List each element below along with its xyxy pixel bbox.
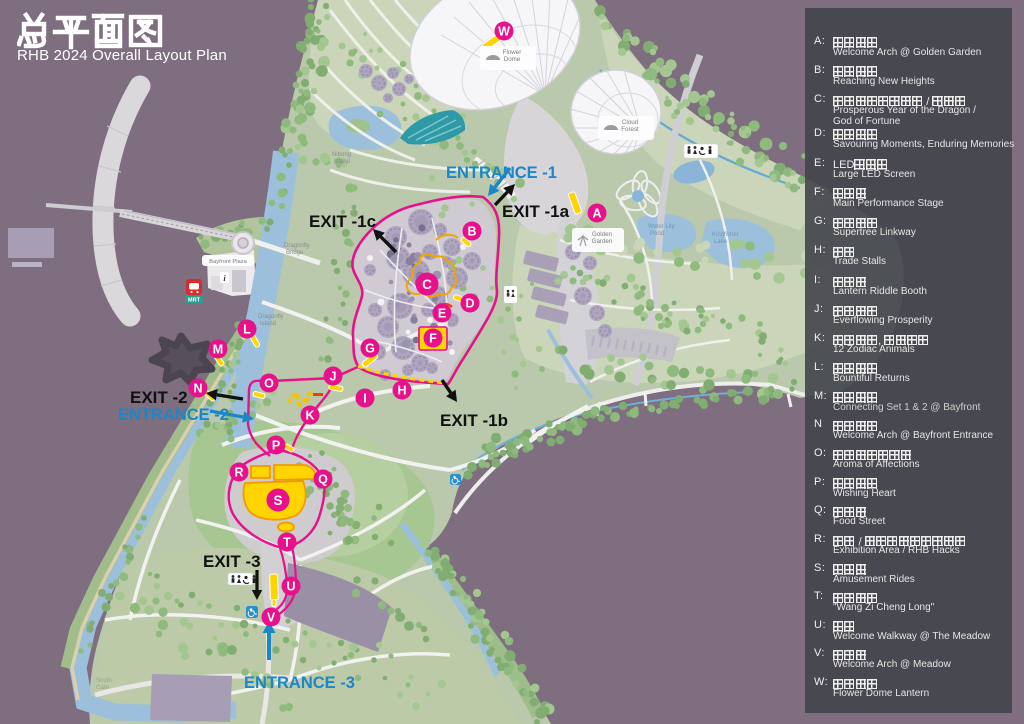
svg-text:C: C [422, 277, 432, 292]
svg-text:ENTRANCE -3: ENTRANCE -3 [244, 674, 355, 692]
svg-text:B: B [467, 225, 476, 239]
svg-text:ENTRANCE -2: ENTRANCE -2 [118, 406, 229, 424]
svg-text:EXIT -2: EXIT -2 [130, 388, 188, 407]
svg-text:Lake: Lake [714, 239, 728, 245]
svg-text:Dragonfly: Dragonfly [284, 243, 310, 249]
svg-text:L: L [243, 323, 251, 337]
svg-text:A: A [592, 207, 601, 221]
svg-text:Island: Island [260, 321, 276, 327]
svg-text:Garden: Garden [592, 238, 613, 245]
svg-text:D: D [465, 297, 474, 311]
svg-text:Kingfisher: Kingfisher [712, 232, 739, 238]
svg-text:M: M [213, 343, 223, 357]
svg-text:Golden: Golden [592, 231, 613, 238]
svg-text:Dome: Dome [504, 56, 521, 63]
svg-text:Forest: Forest [621, 126, 639, 133]
svg-text:Pond: Pond [650, 231, 664, 237]
svg-text:N: N [193, 382, 202, 396]
svg-text:ENTRANCE -1: ENTRANCE -1 [446, 164, 557, 182]
svg-text:V: V [267, 611, 276, 625]
svg-text:EXIT -1c: EXIT -1c [309, 212, 376, 231]
svg-text:Dragonfly: Dragonfly [258, 314, 284, 320]
svg-text:Island: Island [334, 159, 350, 165]
svg-text:J: J [330, 370, 337, 384]
svg-text:South: South [96, 678, 112, 684]
svg-text:I: I [363, 392, 366, 406]
svg-text:H: H [397, 384, 406, 398]
svg-text:E: E [438, 307, 446, 321]
svg-text:K: K [305, 409, 314, 423]
svg-text:Flower: Flower [503, 49, 522, 56]
svg-text:EXIT -1a: EXIT -1a [502, 202, 570, 221]
svg-text:U: U [286, 580, 295, 594]
svg-text:G: G [365, 342, 375, 356]
svg-text:S: S [273, 493, 282, 508]
svg-text:R: R [234, 466, 243, 480]
svg-text:Q: Q [318, 473, 328, 487]
svg-text:Nibong: Nibong [332, 152, 351, 158]
svg-text:O: O [264, 377, 274, 391]
svg-text:Cloud: Cloud [622, 119, 639, 126]
svg-text:Gate: Gate [96, 685, 110, 691]
svg-text:P: P [272, 439, 280, 453]
svg-text:MRT: MRT [188, 298, 201, 304]
svg-text:W: W [498, 25, 510, 39]
svg-text:Bridge: Bridge [286, 250, 304, 256]
svg-text:EXIT -3: EXIT -3 [203, 552, 261, 571]
svg-text:F: F [429, 332, 437, 346]
svg-text:T: T [283, 536, 291, 550]
svg-text:EXIT -1b: EXIT -1b [440, 411, 508, 430]
svg-text:Bayfront Plaza: Bayfront Plaza [209, 259, 247, 265]
svg-text:Water Lily: Water Lily [648, 224, 674, 230]
